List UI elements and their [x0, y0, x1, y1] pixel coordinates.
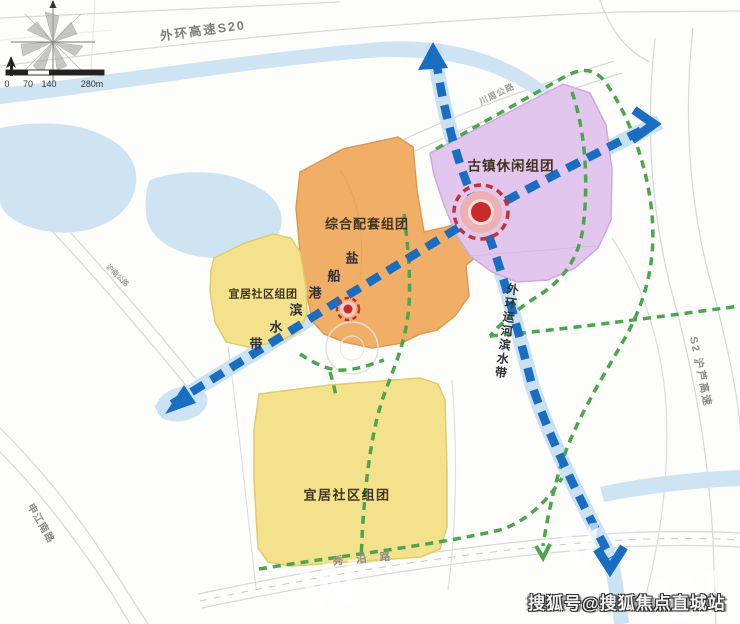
corridor-char: 滨 [289, 304, 302, 317]
map-canvas [0, 0, 740, 624]
greenway-right [490, 306, 740, 336]
road-line [228, 346, 256, 588]
greenway-arrow-down-icon [536, 544, 550, 558]
zone-label-comprehensive: 综合配套组团 [325, 218, 409, 231]
zone-residential-south [254, 378, 447, 566]
lake-west [0, 123, 136, 232]
corridor-char: 港 [308, 287, 321, 300]
river-bottom-right [600, 470, 740, 502]
corridor-char: 带 [249, 338, 262, 351]
zone-label-ancient-town: 古镇休闲组团 [468, 159, 555, 173]
zone-label-residential-west: 宜居社区组团 [229, 290, 298, 301]
corridor-char: 船 [327, 270, 340, 283]
planning-map: 综合配套组团 古镇休闲组团 宜居社区组团 宜居社区组团 盐 船 港 滨 水 带 … [0, 0, 740, 624]
secondary-node-core [344, 305, 353, 314]
scale-tick: 280m [81, 79, 104, 89]
scale-tick: 0 [4, 79, 9, 89]
road-line [600, 0, 650, 62]
watermark-text: 搜狐号@搜狐焦点直城站 [528, 589, 726, 614]
main-node-core [471, 202, 491, 222]
scale-tick: 140 [41, 79, 56, 89]
road-shenjiang-edge [0, 428, 148, 624]
corridor-char: 盐 [345, 252, 358, 265]
road-line [448, 380, 455, 590]
scale-seg [6, 70, 28, 75]
zone-label-residential-south: 宜居社区组团 [303, 489, 390, 502]
corridor-char: 水 [269, 321, 282, 334]
scale-tick: 70 [23, 79, 33, 89]
scale-seg [49, 70, 104, 75]
greenway-west-link [300, 354, 384, 370]
road-shenjiang-edge [0, 452, 130, 624]
